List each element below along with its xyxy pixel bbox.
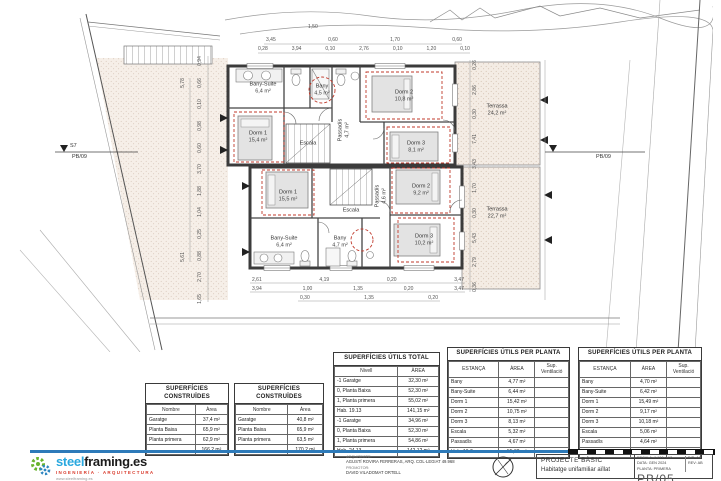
table-row: Passadís4,67 m²: [449, 437, 569, 447]
table-row: Dorm 38,13 m²: [449, 417, 569, 427]
project-type: PROJECTE BÀSIC: [541, 457, 630, 464]
table-row: Dorm 310,18 m²: [580, 417, 701, 427]
table-title: SUPERFÍCIES ÚTILS PER PLANTA: [579, 348, 701, 361]
north-arrow: [470, 454, 536, 479]
table-superficies-utils-total: SUPERFÍCIES ÚTILS TOTAL Nivell ÀREA -1 G…: [333, 352, 440, 458]
table-row: Passadís4,64 m²: [580, 437, 701, 447]
table-row: 0, Planta Baixa52,30 m²: [335, 386, 439, 396]
table-row: Dorm 115,42 m²: [449, 397, 569, 407]
table-row: Bany4,70 m²: [580, 377, 701, 387]
table-row: Bany-Suite6,44 m²: [449, 387, 569, 397]
table-row: Garatge40,8 m²: [236, 415, 323, 425]
table-header-row: Nombre Àrea: [236, 405, 323, 415]
table-row: Hab. 19.13141,15 m²: [335, 406, 439, 416]
table-title: SUPERFÍCIES CONSTRUÏDES: [146, 384, 228, 404]
section-marker-right-sheet: PB/09: [596, 154, 611, 160]
table-row: Bany-Suite6,42 m²: [580, 387, 701, 397]
table-row: Dorm 29,17 m²: [580, 407, 701, 417]
table-header-row: Nivell ÀREA: [335, 366, 439, 376]
table-row: -1 Garatge34,96 m²: [335, 416, 439, 426]
title-block: steelframing.es INGENIERÍA · ARQUITECTUR…: [30, 454, 713, 479]
project-title-block: PROJECTE BÀSIC Habitatge unifamiliar aïl…: [536, 454, 635, 479]
gears-logo-icon: [30, 455, 52, 477]
table-row: Planta primera62,9 m²: [147, 435, 228, 445]
table-row: Planta Baixa65,9 m²: [147, 425, 228, 435]
table-superficies-utils-per-planta-1: SUPERFÍCIES ÚTILS PER PLANTA ESTANÇA ÀRE…: [447, 347, 570, 459]
floor-plan-drawing: [0, 0, 713, 352]
table-row: Planta primera63,5 m²: [236, 435, 323, 445]
sheet-meta-block: ESCALA: 1:100 a A3 DATA: GEN 2024 PLANTA…: [635, 454, 713, 479]
section-marker-left-sheet: PB/09: [72, 154, 87, 160]
table-row: Dorm 115,49 m²: [580, 397, 701, 407]
table-row: Dorm 210,75 m²: [449, 407, 569, 417]
titleblock-blue-divider: [30, 450, 568, 453]
table-header-row: ESTANÇA ÀREA Sup. Ventilació: [580, 361, 701, 377]
table-row: Bany4,77 m²: [449, 377, 569, 387]
table-row: 1, Planta primera54,86 m²: [335, 436, 439, 446]
architect-promoter-block: ARQUITECTE: AGUSTÍ ROVIRA FERRERAS, ARQ.…: [346, 454, 470, 479]
table-row: Planta Baixa65,9 m²: [236, 425, 323, 435]
project-name: Habitatge unifamiliar aïllat: [541, 467, 630, 473]
table-row: 0, Planta Baixa52,30 m²: [335, 426, 439, 436]
table-header-row: Nombre Àrea: [147, 405, 228, 415]
table-header-row: ESTANÇA ÀREA Sup. Ventilació: [449, 361, 569, 377]
promoter-name: DAVID VILADOMAT ORTELL: [346, 470, 470, 475]
table-title: SUPERFÍCIES ÚTILS TOTAL: [334, 353, 439, 366]
table-superficies-construides-1: SUPERFÍCIES CONSTRUÏDES Nombre Àrea Gara…: [145, 383, 229, 456]
brand-contact-line: www.steelframing.es: [56, 476, 154, 481]
table-row: Escala5,06 m²: [580, 427, 701, 437]
section-marker-left-code: S7: [70, 143, 77, 149]
sheet-number: PB/05: [637, 473, 710, 481]
architect-name: AGUSTÍ ROVIRA FERRERAS, ARQ. COL·LEGIAT …: [346, 459, 470, 464]
table-row: Escala5,32 m²: [449, 427, 569, 437]
table-row: 1, Planta primera55,02 m²: [335, 396, 439, 406]
compass-icon: [491, 455, 515, 479]
table-superficies-utils-per-planta-2: SUPERFÍCIES ÚTILS PER PLANTA ESTANÇA ÀRE…: [578, 347, 702, 459]
company-logo: steelframing.es INGENIERÍA · ARQUITECTUR…: [30, 454, 346, 479]
dimension-top-single: 1,50: [308, 24, 318, 30]
table-row: Garatge37,4 m²: [147, 415, 228, 425]
table-superficies-construides-2: SUPERFÍCIES CONSTRUÏDES Nombre Àrea Gara…: [234, 383, 324, 456]
table-title: SUPERFÍCIES CONSTRUÏDES: [235, 384, 323, 404]
brand-name: steelframing.es: [56, 455, 154, 468]
brand-tagline: INGENIERÍA · ARQUITECTURA: [56, 470, 154, 475]
table-row: -1 Garatge32,30 m²: [335, 376, 439, 386]
table-title: SUPERFÍCIES ÚTILS PER PLANTA: [448, 348, 569, 361]
drawing-sheet: Bany-Suite6,4 m² Bany4,5 m² Dorm 210,8 m…: [0, 0, 721, 481]
rev-line: REV: AB: [688, 461, 710, 466]
